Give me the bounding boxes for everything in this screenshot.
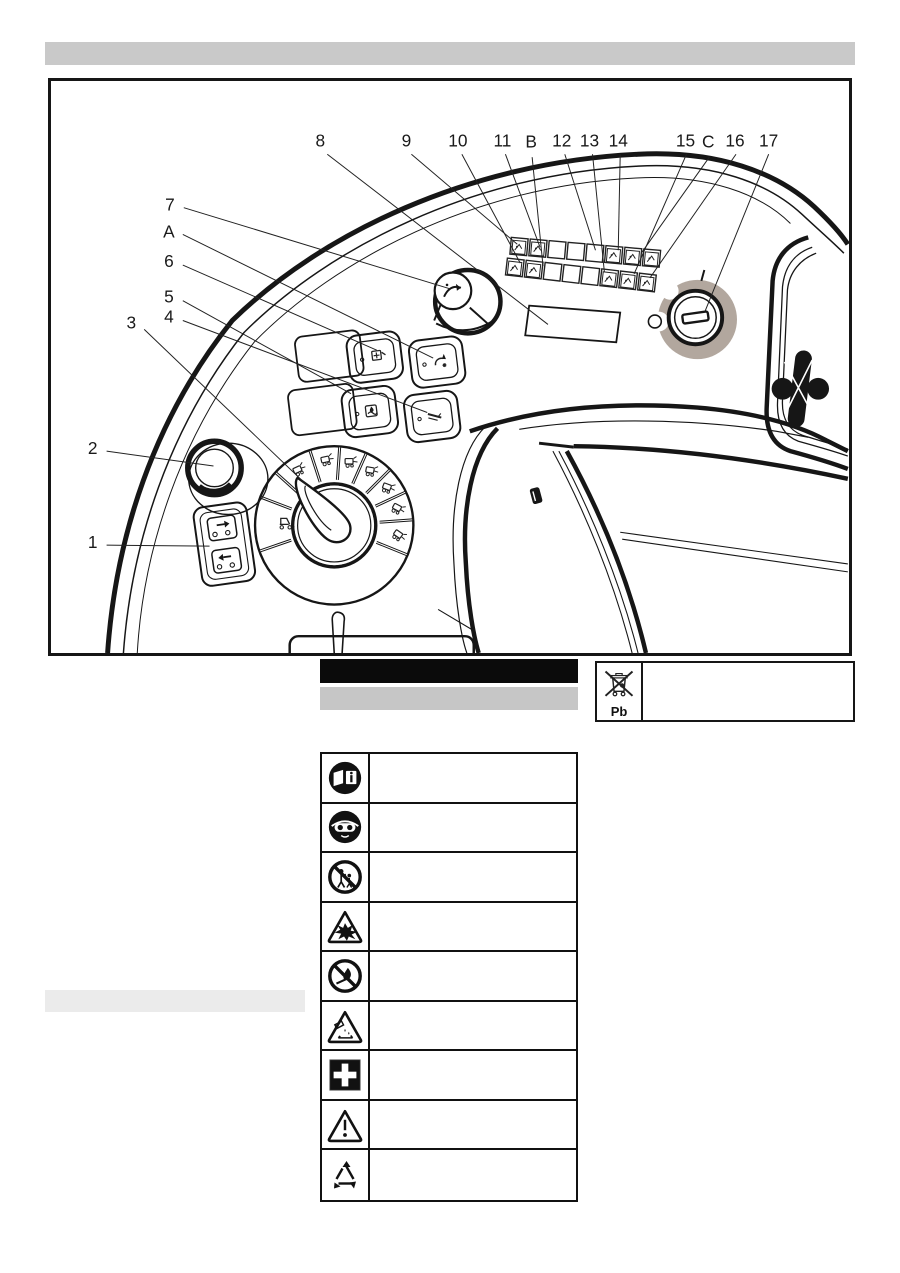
key-switch[interactable] [648,270,737,359]
battery-symbol-cell: Pb [597,663,643,720]
page-heading-bar [45,42,855,65]
brush-button[interactable] [408,335,467,389]
table-row [322,754,576,804]
callout-15: 15 [676,130,695,150]
program-selector[interactable] [255,446,413,604]
display [525,306,620,343]
key-position-I-mark [701,270,704,281]
callout-10: 10 [448,130,467,150]
battery-note-text-area [643,663,853,720]
table-row [322,1002,576,1052]
callout-C: C [702,131,715,151]
callout-14: 14 [609,130,629,150]
keep-children-away-icon [326,858,364,896]
table-row [322,1150,576,1200]
callout-9: 9 [402,130,412,150]
callout-7: 7 [165,195,175,215]
table-row [322,804,576,854]
callout-17: 17 [759,130,778,150]
label-plate-top [294,330,364,383]
figure-caption-gray-bar [320,687,578,710]
figure-caption-black-bar [320,659,578,683]
suction-button[interactable] [403,390,462,444]
panel-clip [529,487,543,505]
console-body-lines [108,154,848,653]
table-text-cell [370,952,576,1000]
battery-disposal-note: Pb [595,661,855,722]
console-drawing: 8 9 10 11 B 12 13 14 15 C 16 17 7 A 6 5 … [51,81,849,653]
callout-B: B [525,131,537,151]
section-heading-bar [45,990,305,1012]
manual-page: 8 9 10 11 B 12 13 14 15 C 16 17 7 A 6 5 … [0,0,900,1273]
table-text-cell [370,804,576,852]
table-text-cell [370,903,576,951]
crossed-out-waste-bin-icon [601,666,637,704]
callout-11: 11 [493,130,511,150]
table-row [322,1051,576,1101]
callout-1: 1 [88,532,98,552]
table-row [322,903,576,953]
callout-6: 6 [164,251,174,271]
table-row [322,1101,576,1151]
forward-key [207,515,238,541]
operating-instructions-icon [326,759,364,797]
table-row [322,952,576,1002]
indicator-lamp-field [505,237,660,291]
callout-8: 8 [316,130,326,150]
recycling-icon [325,1155,365,1195]
callout-5: 5 [164,287,174,307]
callout-A: A [163,221,175,241]
function-buttons [287,330,466,444]
callout-12: 12 [552,130,571,150]
general-warning-icon [325,1106,365,1144]
cover-latch[interactable] [772,349,829,428]
table-text-cell [370,1101,576,1149]
table-row [322,853,576,903]
table-text-cell [370,1002,576,1050]
corrosive-hazard-icon [325,1007,365,1045]
callout-2: 2 [88,438,98,458]
eye-protection-icon [326,808,364,846]
callout-16: 16 [725,130,744,150]
callout-3: 3 [127,312,137,332]
explosion-hazard-icon [325,907,365,945]
table-text-cell [370,1051,576,1099]
reverse-key [211,547,242,573]
callout-4: 4 [164,306,174,326]
table-text-cell [370,853,576,901]
first-aid-icon [326,1056,364,1094]
callout-13: 13 [580,130,599,150]
safety-symbol-table [320,752,578,1202]
control-panel-figure: 8 9 10 11 B 12 13 14 15 C 16 17 7 A 6 5 … [48,78,852,656]
no-open-flame-icon [326,957,364,995]
table-text-cell [370,754,576,802]
table-text-cell [370,1150,576,1200]
lead-label: Pb [611,705,628,718]
